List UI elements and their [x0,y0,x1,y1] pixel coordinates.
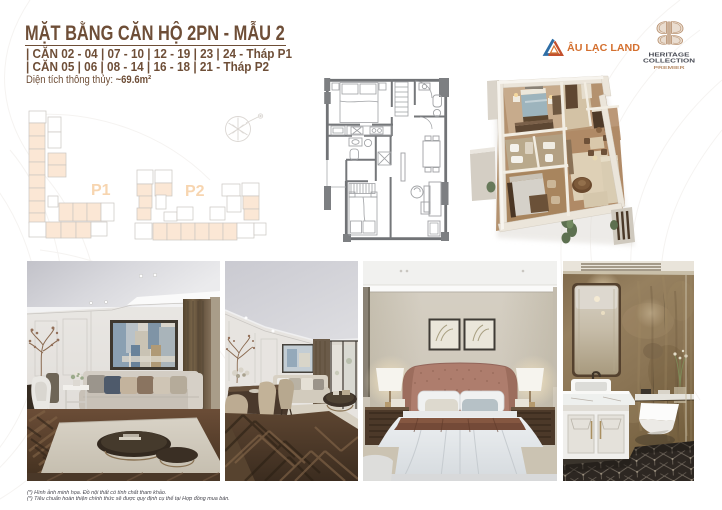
svg-text:COLLECTION: COLLECTION [643,59,695,65]
svg-text:PREMIER: PREMIER [654,65,686,70]
svg-text:ÂU LẠC LAND: ÂU LẠC LAND [567,41,640,54]
svg-text:P2: P2 [185,183,205,200]
svg-text:P1: P1 [91,182,111,199]
